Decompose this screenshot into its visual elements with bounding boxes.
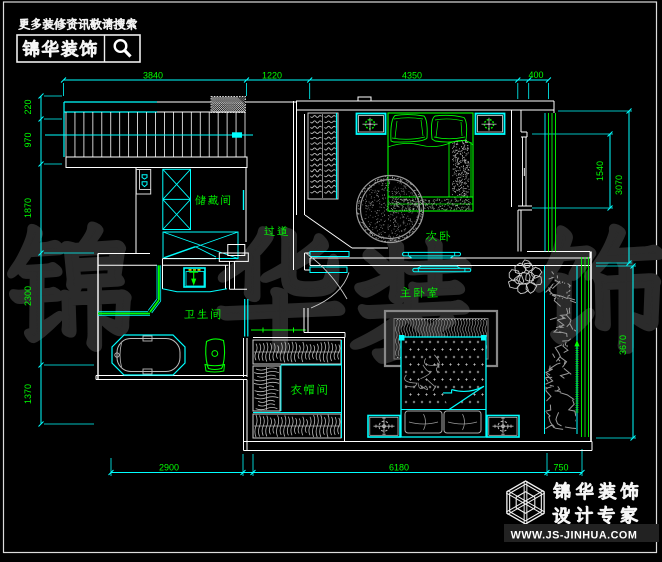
svg-text:6180: 6180 <box>389 463 409 473</box>
svg-text:3070: 3070 <box>614 175 624 195</box>
svg-text:220: 220 <box>23 99 33 114</box>
svg-text:WWW.JS-JINHUA.COM: WWW.JS-JINHUA.COM <box>511 530 638 542</box>
svg-text:4350: 4350 <box>402 71 422 81</box>
svg-text:400: 400 <box>528 70 543 80</box>
svg-text:3840: 3840 <box>143 71 163 81</box>
svg-text:1540: 1540 <box>595 161 605 181</box>
svg-text:1370: 1370 <box>23 384 33 404</box>
svg-text:2900: 2900 <box>159 463 179 473</box>
svg-text:1220: 1220 <box>262 71 282 81</box>
svg-text:1870: 1870 <box>23 198 33 218</box>
svg-text:970: 970 <box>23 132 33 147</box>
svg-text:750: 750 <box>553 463 568 473</box>
svg-text:2300: 2300 <box>23 286 33 306</box>
svg-text:3670: 3670 <box>618 335 628 355</box>
